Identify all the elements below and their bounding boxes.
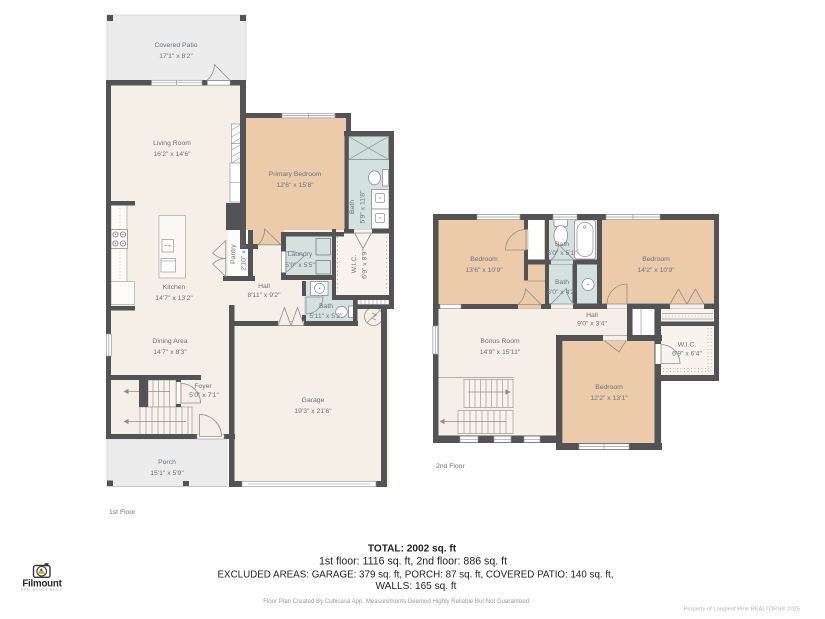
svg-text:5'9" x 5'5": 5'9" x 5'5": [285, 262, 315, 269]
svg-text:Laundry: Laundry: [288, 251, 313, 258]
svg-text:Porch: Porch: [158, 459, 176, 466]
svg-text:6'0" x 4'2": 6'0" x 4'2": [547, 289, 577, 296]
svg-text:Primary Bedroom: Primary Bedroom: [269, 171, 322, 178]
svg-text:17'1" x 8'2": 17'1" x 8'2": [159, 53, 193, 60]
svg-text:Foyer: Foyer: [194, 383, 212, 390]
svg-text:1st Floor: 1st Floor: [109, 509, 136, 516]
svg-text:Garage: Garage: [302, 397, 325, 404]
svg-text:W.I.C.: W.I.C.: [351, 255, 358, 274]
svg-text:6'9" x 8'9": 6'9" x 8'9": [362, 249, 369, 279]
svg-text:16'2" x 14'6": 16'2" x 14'6": [153, 151, 191, 158]
svg-text:12'2" x 13'1": 12'2" x 13'1": [590, 395, 628, 402]
svg-text:Dining Area: Dining Area: [152, 338, 187, 345]
svg-text:Living Room: Living Room: [153, 140, 191, 147]
svg-text:1st floor: 1116 sq. ft, 2nd fl: 1st floor: 1116 sq. ft, 2nd floor: 886 s…: [319, 556, 507, 568]
svg-text:Pantry: Pantry: [230, 244, 237, 264]
svg-text:Floor Plan Created By Cubicasa: Floor Plan Created By Cubicasa App. Meas…: [263, 598, 531, 605]
svg-text:5'11" x 5'2": 5'11" x 5'2": [310, 313, 344, 320]
svg-text:9'0" x 3'4": 9'0" x 3'4": [577, 321, 607, 328]
svg-text:6'0" x 5'1": 6'0" x 5'1": [547, 250, 577, 257]
svg-text:14'2" x 10'9": 14'2" x 10'9": [637, 267, 675, 274]
svg-text:Property of Longleaf Pine REAL: Property of Longleaf Pine REALTORS® 2025: [683, 606, 800, 613]
svg-text:Hall: Hall: [258, 283, 270, 290]
svg-text:REAL ESTATE MEDIA: REAL ESTATE MEDIA: [21, 588, 62, 592]
svg-text:Covered Patio: Covered Patio: [154, 42, 197, 49]
svg-text:Bath: Bath: [319, 303, 333, 310]
svg-text:2nd Floor: 2nd Floor: [436, 463, 465, 470]
svg-text:Bonus Room: Bonus Room: [480, 338, 520, 345]
svg-text:Bedroom: Bedroom: [470, 256, 498, 263]
svg-text:8'11" x 9'2": 8'11" x 9'2": [248, 292, 282, 299]
svg-text:13'6" x 10'9": 13'6" x 10'9": [465, 267, 503, 274]
svg-text:14'7" x 8'3": 14'7" x 8'3": [153, 349, 187, 356]
svg-text:Kitchen: Kitchen: [163, 284, 186, 291]
svg-text:Bath: Bath: [349, 200, 356, 214]
svg-text:Bath: Bath: [555, 279, 569, 286]
svg-text:5'9" x 11'8": 5'9" x 11'8": [360, 190, 367, 224]
svg-text:Bedroom: Bedroom: [595, 384, 623, 391]
svg-text:12'6" x 15'8": 12'6" x 15'8": [276, 182, 314, 189]
svg-text:15'1" x 5'9": 15'1" x 5'9": [150, 470, 184, 477]
svg-text:Hall: Hall: [586, 312, 598, 319]
svg-text:19'3" x 21'6": 19'3" x 21'6": [294, 408, 332, 415]
svg-text:W.I.C.: W.I.C.: [678, 342, 697, 349]
svg-text:WALLS: 165 sq. ft: WALLS: 165 sq. ft: [376, 581, 457, 592]
svg-text:EXCLUDED AREAS: GARAGE: 379 sq: EXCLUDED AREAS: GARAGE: 379 sq. ft, PORC…: [218, 570, 614, 581]
svg-text:14'9" x 15'11": 14'9" x 15'11": [480, 349, 521, 356]
svg-text:2'10" x 5'7": 2'10" x 5'7": [241, 237, 248, 271]
svg-text:6'9" x 6'4": 6'9" x 6'4": [672, 351, 702, 358]
svg-text:5'0" x 7'1": 5'0" x 7'1": [189, 392, 219, 399]
svg-text:14'7" x 13'2": 14'7" x 13'2": [155, 295, 193, 302]
svg-text:Bedroom: Bedroom: [642, 256, 670, 263]
svg-text:Bath: Bath: [555, 241, 569, 248]
svg-text:TOTAL: 2002 sq. ft: TOTAL: 2002 sq. ft: [368, 544, 457, 555]
